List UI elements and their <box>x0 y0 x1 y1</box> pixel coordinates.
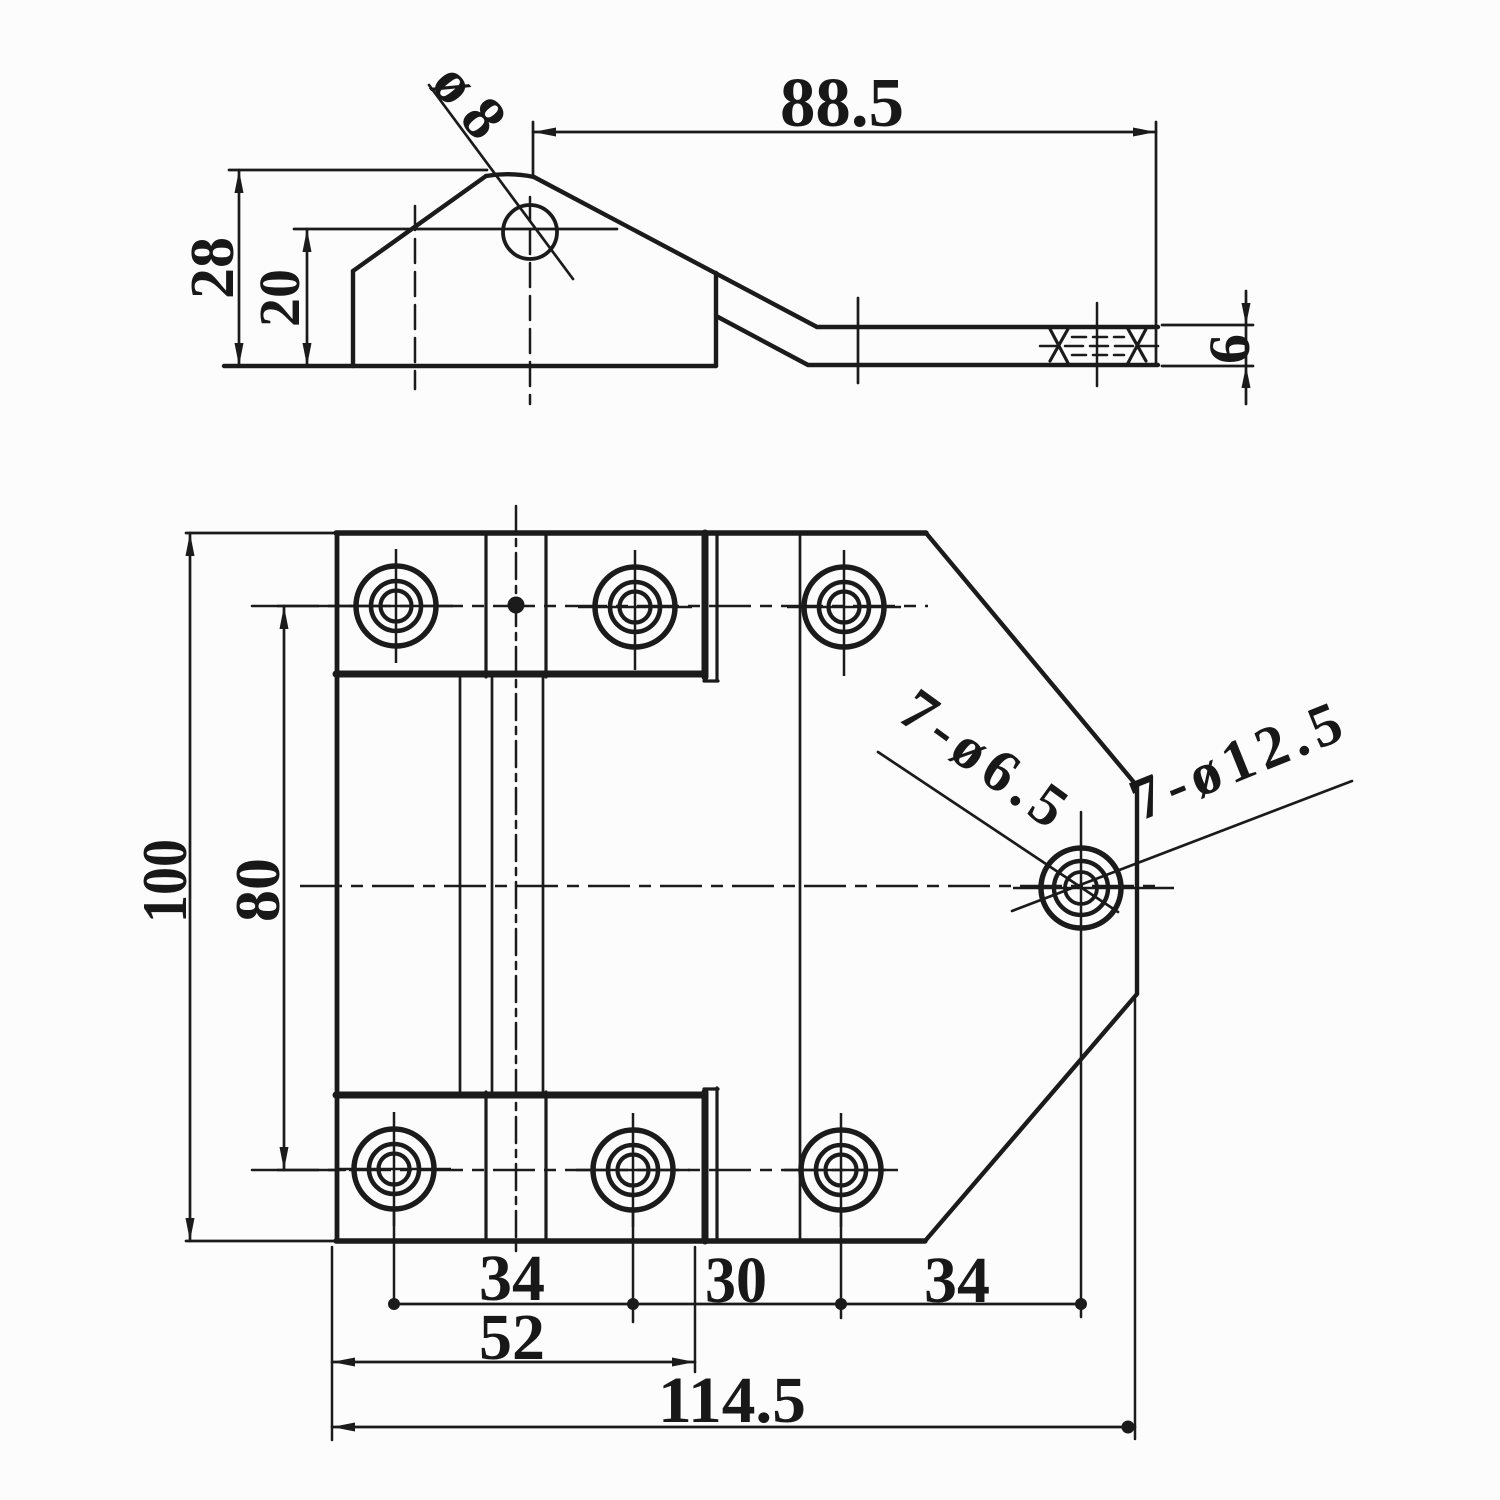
svg-text:52: 52 <box>479 1301 545 1374</box>
svg-text:80: 80 <box>222 858 293 922</box>
svg-text:34: 34 <box>924 1244 990 1317</box>
svg-text:30: 30 <box>705 1244 767 1317</box>
svg-text:28: 28 <box>179 237 247 299</box>
svg-text:114.5: 114.5 <box>658 1364 806 1437</box>
svg-text:88.5: 88.5 <box>780 65 904 142</box>
svg-text:6: 6 <box>1197 334 1262 364</box>
svg-text:100: 100 <box>129 839 200 923</box>
svg-text:20: 20 <box>247 269 312 327</box>
